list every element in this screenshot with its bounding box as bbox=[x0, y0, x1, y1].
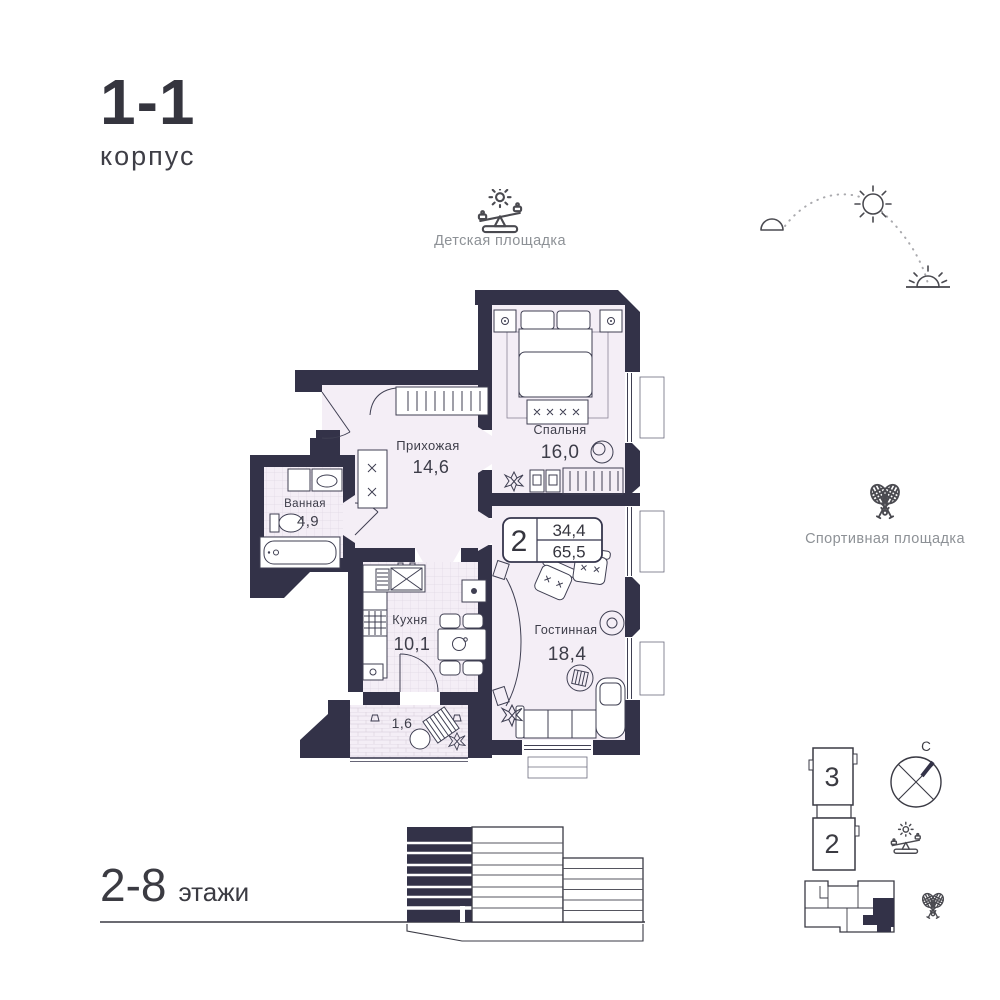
compass-north-label: С bbox=[921, 739, 931, 754]
site-playground-icon bbox=[891, 822, 920, 853]
flat-plan-page: 1-1 корпус Детская площадка Спортивная п… bbox=[0, 0, 1000, 1000]
apartment-info-badge: 2 34,4 65,5 bbox=[503, 518, 602, 562]
site-building-3[interactable]: 3 bbox=[809, 748, 857, 805]
elevation-right-tower bbox=[563, 858, 643, 922]
rooms-count: 2 bbox=[511, 525, 528, 558]
sports-rackets-icon bbox=[862, 480, 908, 526]
header: 1-1 корпус bbox=[100, 70, 196, 172]
elevation-ground-ramp bbox=[407, 924, 643, 941]
site-sports-icon bbox=[920, 891, 945, 920]
building-elevation bbox=[100, 815, 660, 947]
building-2-label: 2 bbox=[824, 829, 839, 859]
playground-seesaw-icon bbox=[471, 189, 529, 237]
compass-icon: С bbox=[891, 739, 941, 807]
living-area: 18,4 bbox=[548, 644, 587, 665]
bathroom-name: Ванная bbox=[284, 498, 326, 510]
floor-plan[interactable]: 2 34,4 65,5 Прихожая 14,6 Спальня 16,0 В… bbox=[250, 280, 670, 780]
site-plan: 3 2 С bbox=[800, 738, 970, 943]
sports-label: Спортивная площадка bbox=[775, 531, 995, 547]
hallway-name: Прихожая bbox=[396, 438, 459, 453]
bathroom-area: 4,9 bbox=[297, 513, 319, 530]
total-area-value: 65,5 bbox=[552, 543, 585, 562]
bedroom-name: Спальня bbox=[533, 423, 586, 437]
balcony-area: 1,6 bbox=[392, 715, 413, 731]
sun-path-graphic bbox=[752, 183, 972, 308]
site-joint bbox=[817, 805, 851, 818]
living-name: Гостинная bbox=[535, 623, 598, 637]
site-building-2[interactable]: 2 bbox=[813, 818, 859, 870]
kitchen-name: Кухня bbox=[392, 613, 427, 627]
elevation-highlighted-floors bbox=[407, 827, 472, 922]
block-title: 1-1 bbox=[100, 70, 196, 134]
sunset-icon bbox=[906, 266, 950, 287]
bedroom-area: 16,0 bbox=[541, 442, 580, 463]
site-floor-outline bbox=[805, 881, 894, 932]
living-area-value: 34,4 bbox=[552, 521, 585, 540]
hallway-area: 14,6 bbox=[413, 457, 450, 477]
sun-icon bbox=[855, 186, 891, 222]
block-subtitle: корпус bbox=[100, 141, 196, 172]
kitchen-area: 10,1 bbox=[394, 634, 431, 654]
playground-label: Детская площадка bbox=[390, 233, 610, 249]
sunrise-dome-icon bbox=[761, 219, 783, 230]
sun-arc-dotted-path bbox=[785, 194, 928, 284]
building-3-label: 3 bbox=[824, 762, 839, 792]
elevation-mid-tower bbox=[472, 827, 563, 922]
